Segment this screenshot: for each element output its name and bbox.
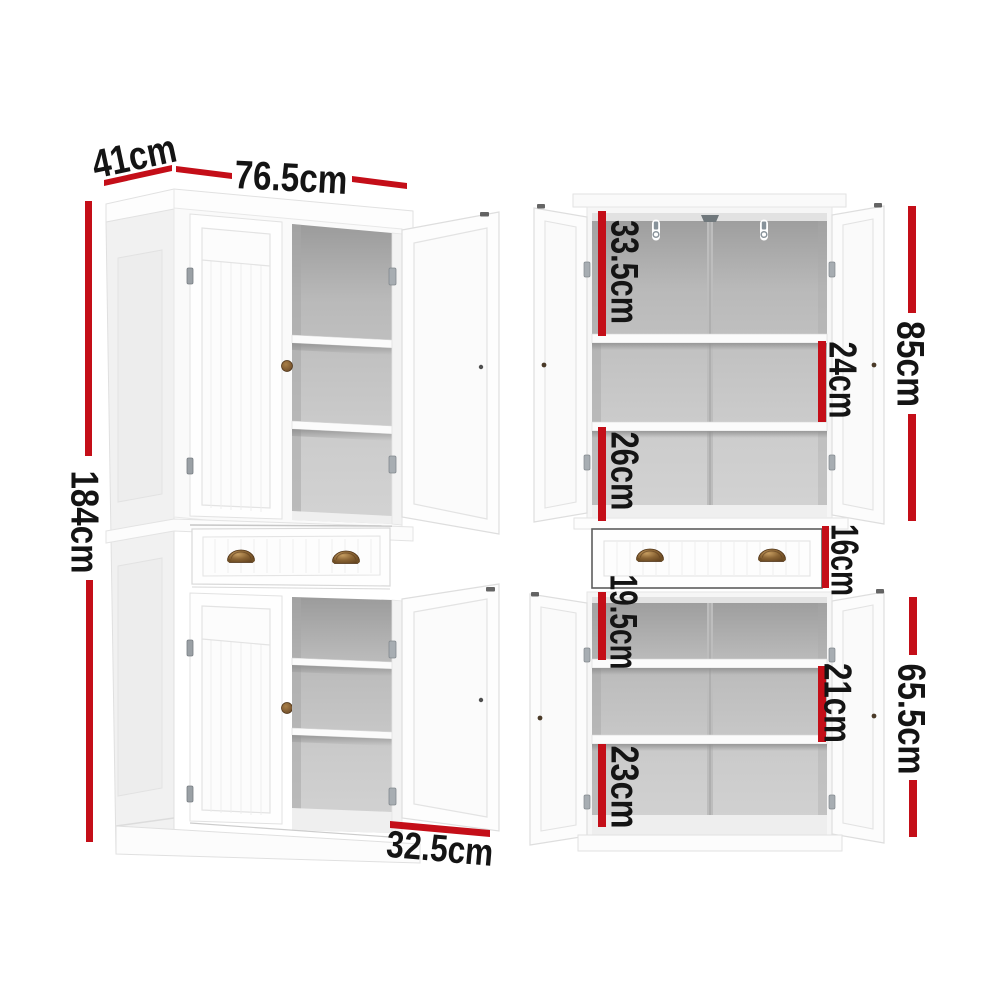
svg-text:76.5cm: 76.5cm: [233, 153, 348, 203]
svg-text:85cm: 85cm: [888, 321, 931, 407]
svg-text:19.5cm: 19.5cm: [601, 575, 644, 670]
svg-text:16cm: 16cm: [822, 524, 865, 596]
svg-text:21cm: 21cm: [815, 663, 858, 743]
svg-text:23cm: 23cm: [602, 746, 645, 829]
svg-text:65.5cm: 65.5cm: [889, 664, 932, 775]
svg-text:184cm: 184cm: [62, 471, 105, 574]
svg-text:26cm: 26cm: [602, 432, 645, 511]
svg-text:24cm: 24cm: [820, 342, 863, 419]
svg-text:33.5cm: 33.5cm: [602, 220, 645, 324]
